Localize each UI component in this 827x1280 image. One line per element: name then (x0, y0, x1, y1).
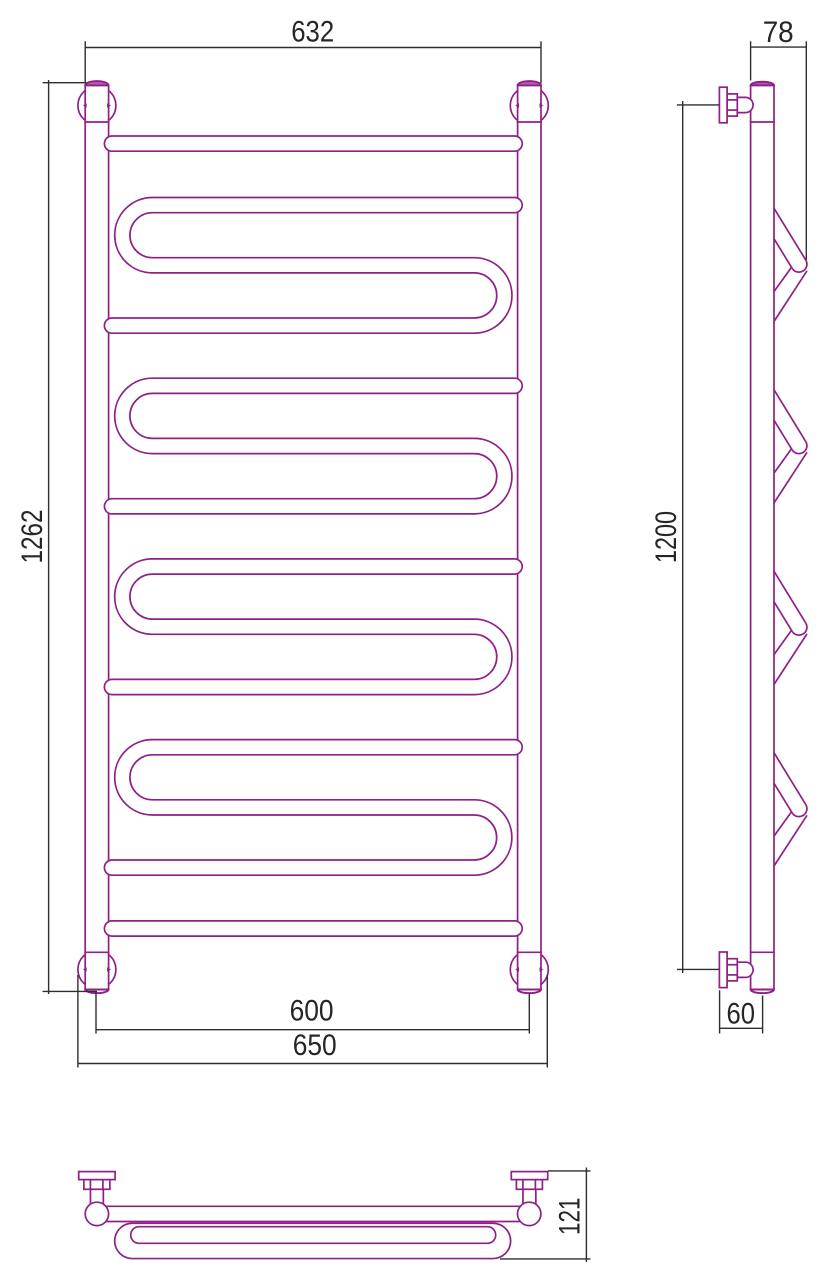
svg-text:632: 632 (291, 16, 334, 49)
svg-text:1262: 1262 (16, 510, 49, 564)
svg-text:600: 600 (290, 995, 334, 1028)
svg-text:1200: 1200 (650, 511, 683, 563)
svg-text:650: 650 (293, 1029, 337, 1062)
svg-text:60: 60 (727, 997, 756, 1030)
svg-text:121: 121 (554, 1198, 587, 1236)
svg-text:78: 78 (763, 16, 794, 49)
